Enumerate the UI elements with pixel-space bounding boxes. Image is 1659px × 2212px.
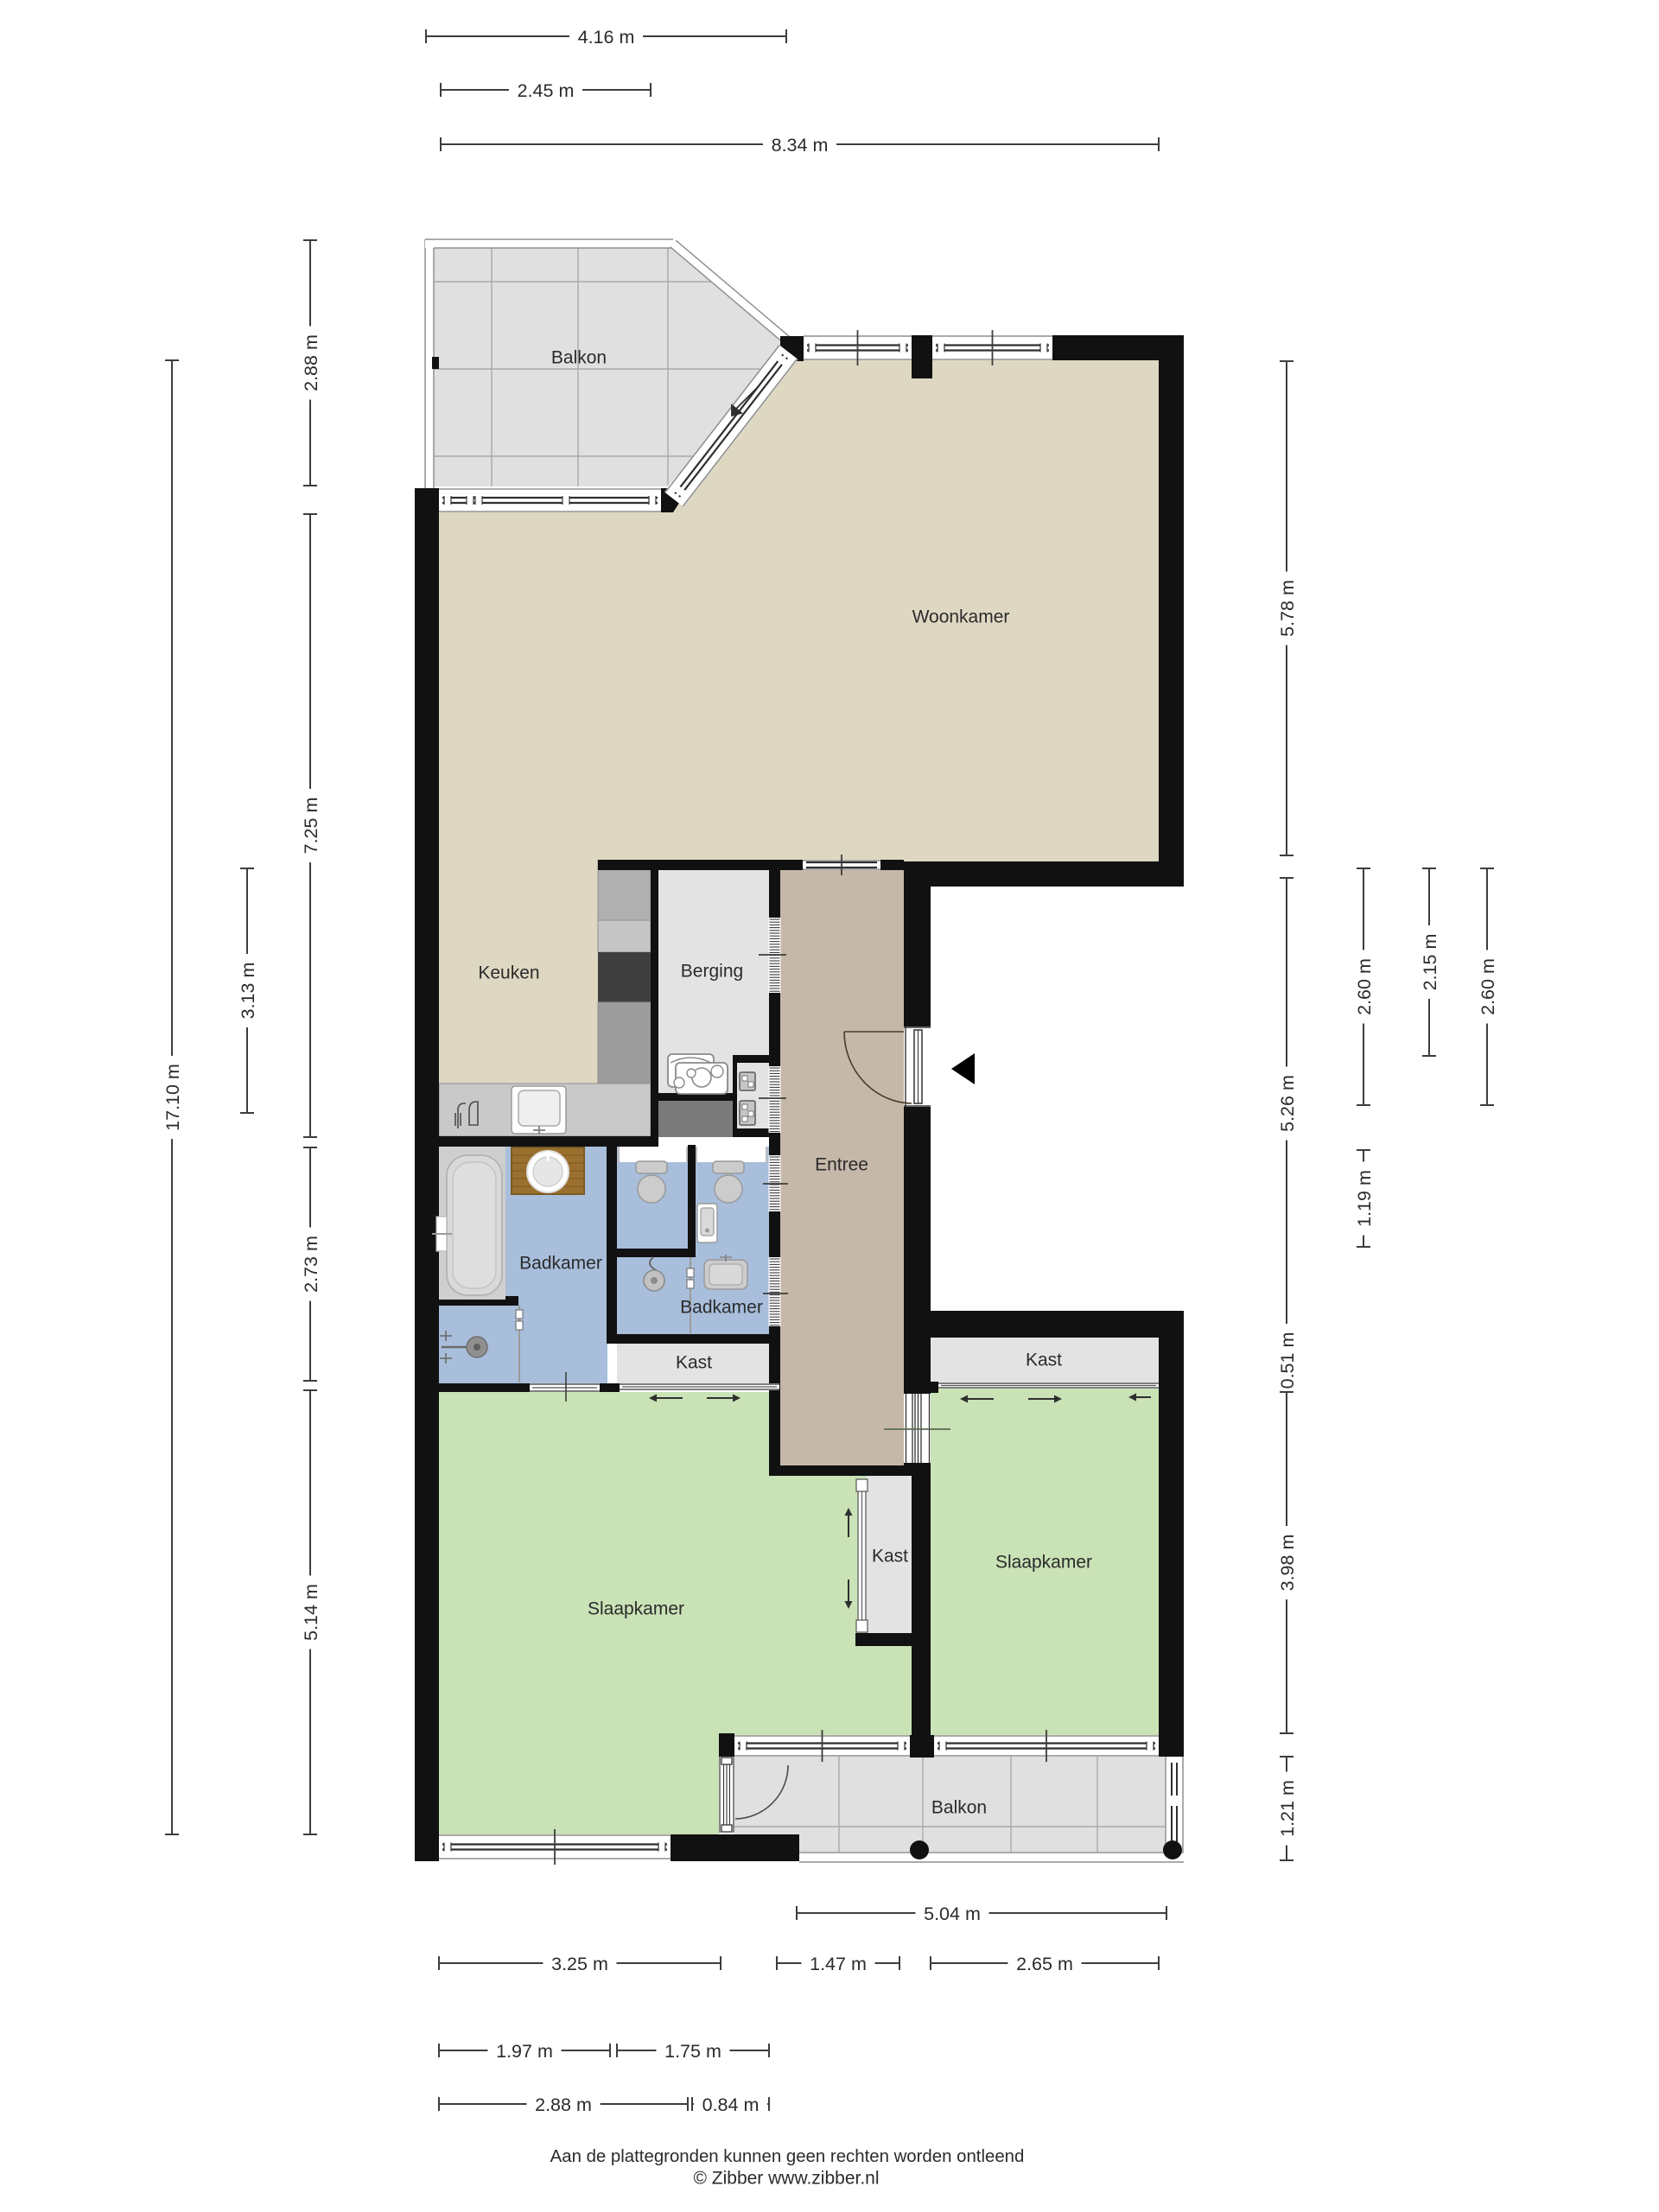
svg-text:1.21 m: 1.21 m [1277,1780,1298,1837]
svg-text:3.98 m: 3.98 m [1277,1535,1298,1592]
svg-text:17.10 m: 17.10 m [162,1064,183,1131]
svg-text:3.13 m: 3.13 m [238,963,258,1020]
svg-text:2.60 m: 2.60 m [1354,958,1375,1015]
svg-text:Badkamer: Badkamer [519,1254,602,1274]
svg-text:Aan de plattegronden kunnen ge: Aan de plattegronden kunnen geen rechten… [550,2147,1025,2166]
svg-text:2.73 m: 2.73 m [301,1236,321,1293]
svg-text:Kast: Kast [872,1547,908,1567]
svg-text:2.60 m: 2.60 m [1478,958,1498,1015]
svg-text:7.25 m: 7.25 m [301,798,321,855]
svg-text:4.16 m: 4.16 m [578,27,635,48]
svg-text:2.65 m: 2.65 m [1016,1954,1073,1974]
svg-text:5.78 m: 5.78 m [1277,580,1298,637]
svg-text:2.45 m: 2.45 m [518,80,575,101]
svg-text:Balkon: Balkon [931,1798,987,1818]
svg-text:1.19 m: 1.19 m [1354,1170,1375,1227]
svg-text:5.04 m: 5.04 m [924,1904,981,1924]
svg-text:Badkamer: Badkamer [680,1298,763,1318]
svg-text:Berging: Berging [681,962,743,982]
svg-text:Slaapkamer: Slaapkamer [995,1553,1092,1573]
svg-text:Kast: Kast [1026,1351,1062,1370]
svg-text:2.88 m: 2.88 m [535,2094,592,2115]
svg-text:Balkon: Balkon [551,348,607,368]
svg-text:0.51 m: 0.51 m [1277,1332,1298,1389]
svg-text:© Zibber www.zibber.nl: © Zibber www.zibber.nl [693,2169,879,2189]
svg-text:1.47 m: 1.47 m [810,1954,867,1974]
svg-text:Entree: Entree [815,1155,868,1175]
svg-text:8.34 m: 8.34 m [772,135,829,156]
svg-text:0.84 m: 0.84 m [702,2094,760,2115]
svg-text:2.88 m: 2.88 m [301,334,321,391]
svg-text:5.14 m: 5.14 m [301,1584,321,1641]
svg-text:Slaapkamer: Slaapkamer [588,1599,684,1619]
svg-text:2.15 m: 2.15 m [1420,934,1440,991]
svg-text:5.26 m: 5.26 m [1277,1075,1298,1132]
svg-text:3.25 m: 3.25 m [551,1954,608,1974]
svg-text:1.97 m: 1.97 m [496,2041,553,2062]
svg-text:1.75 m: 1.75 m [664,2041,721,2062]
svg-text:Woonkamer: Woonkamer [912,607,1010,627]
svg-text:Kast: Kast [676,1353,712,1373]
svg-text:Keuken: Keuken [478,963,539,983]
